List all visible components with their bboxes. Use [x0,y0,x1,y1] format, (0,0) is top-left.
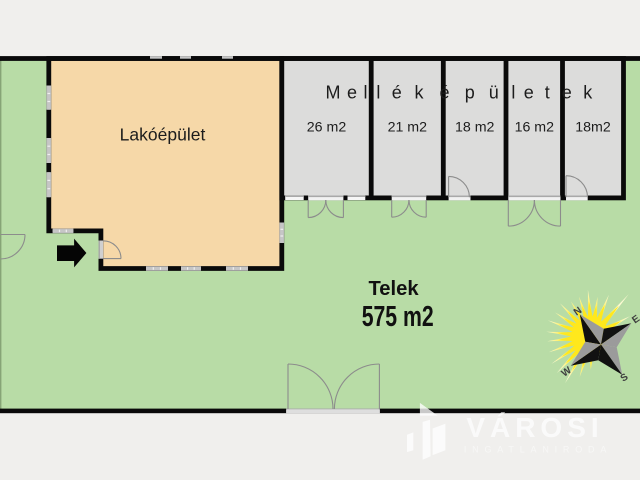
svg-text:é: é [439,83,449,103]
svg-text:e: e [347,83,357,103]
svg-text:l: l [376,83,380,103]
svg-text:e: e [562,83,572,103]
svg-text:e: e [524,83,534,103]
svg-text:18m2: 18m2 [575,120,611,136]
svg-text:Telek: Telek [368,278,419,300]
svg-text:t: t [545,83,550,103]
svg-text:l: l [364,83,368,103]
svg-text:k: k [583,83,593,103]
svg-text:16 m2: 16 m2 [515,120,555,136]
svg-text:INGATLANIRODA: INGATLANIRODA [464,444,612,454]
svg-text:26 m2: 26 m2 [307,120,347,136]
svg-text:575 m2: 575 m2 [362,301,434,333]
svg-text:p: p [465,83,475,103]
svg-text:l: l [511,83,515,103]
svg-text:18 m2: 18 m2 [455,120,495,136]
svg-text:é: é [392,83,402,103]
svg-text:M: M [326,83,341,103]
svg-text:VÁROSI: VÁROSI [466,412,603,443]
svg-text:k: k [415,83,425,103]
svg-text:Lakóépület: Lakóépület [120,124,206,144]
svg-text:ü: ü [489,83,499,103]
svg-text:21 m2: 21 m2 [388,120,428,136]
